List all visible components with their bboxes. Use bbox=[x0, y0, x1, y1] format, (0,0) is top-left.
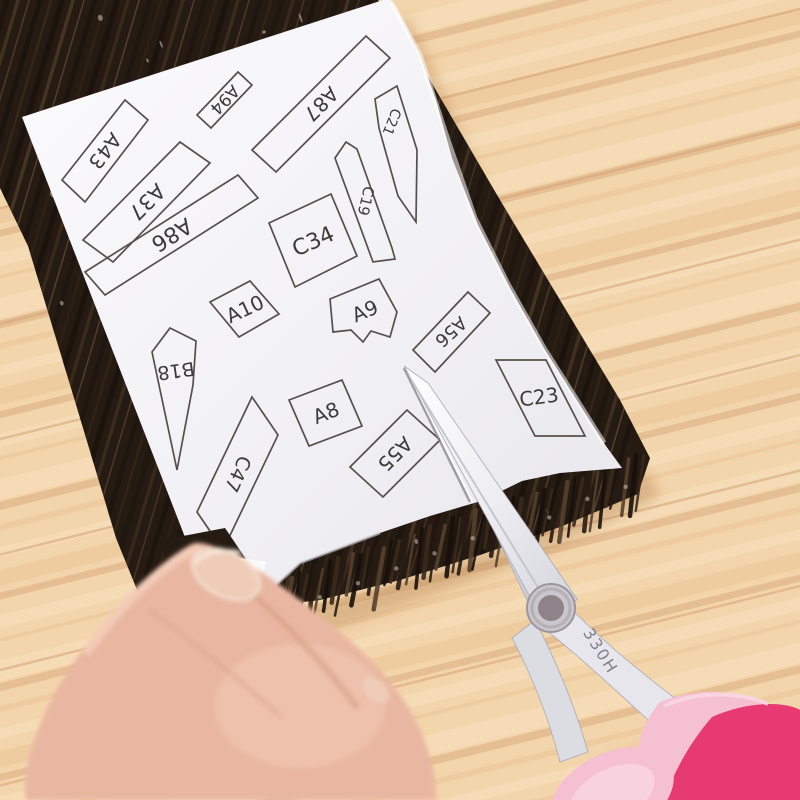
fray-fleck bbox=[432, 551, 436, 555]
scene-canvas: A43A37A94A87C21C19A86C34A10A9B18A8C47A55… bbox=[0, 0, 800, 800]
fray-fleck bbox=[585, 497, 589, 501]
fray-fleck bbox=[356, 581, 360, 585]
fray-fleck bbox=[318, 595, 322, 599]
fray-fleck bbox=[624, 485, 628, 489]
photo-fabric-cutting-scene: A43A37A94A87C21C19A86C34A10A9B18A8C47A55… bbox=[0, 0, 800, 800]
pivot-screw-center bbox=[538, 595, 564, 621]
fray-fleck bbox=[547, 515, 551, 519]
fray-fleck bbox=[394, 566, 398, 570]
fray-fleck bbox=[471, 536, 475, 540]
